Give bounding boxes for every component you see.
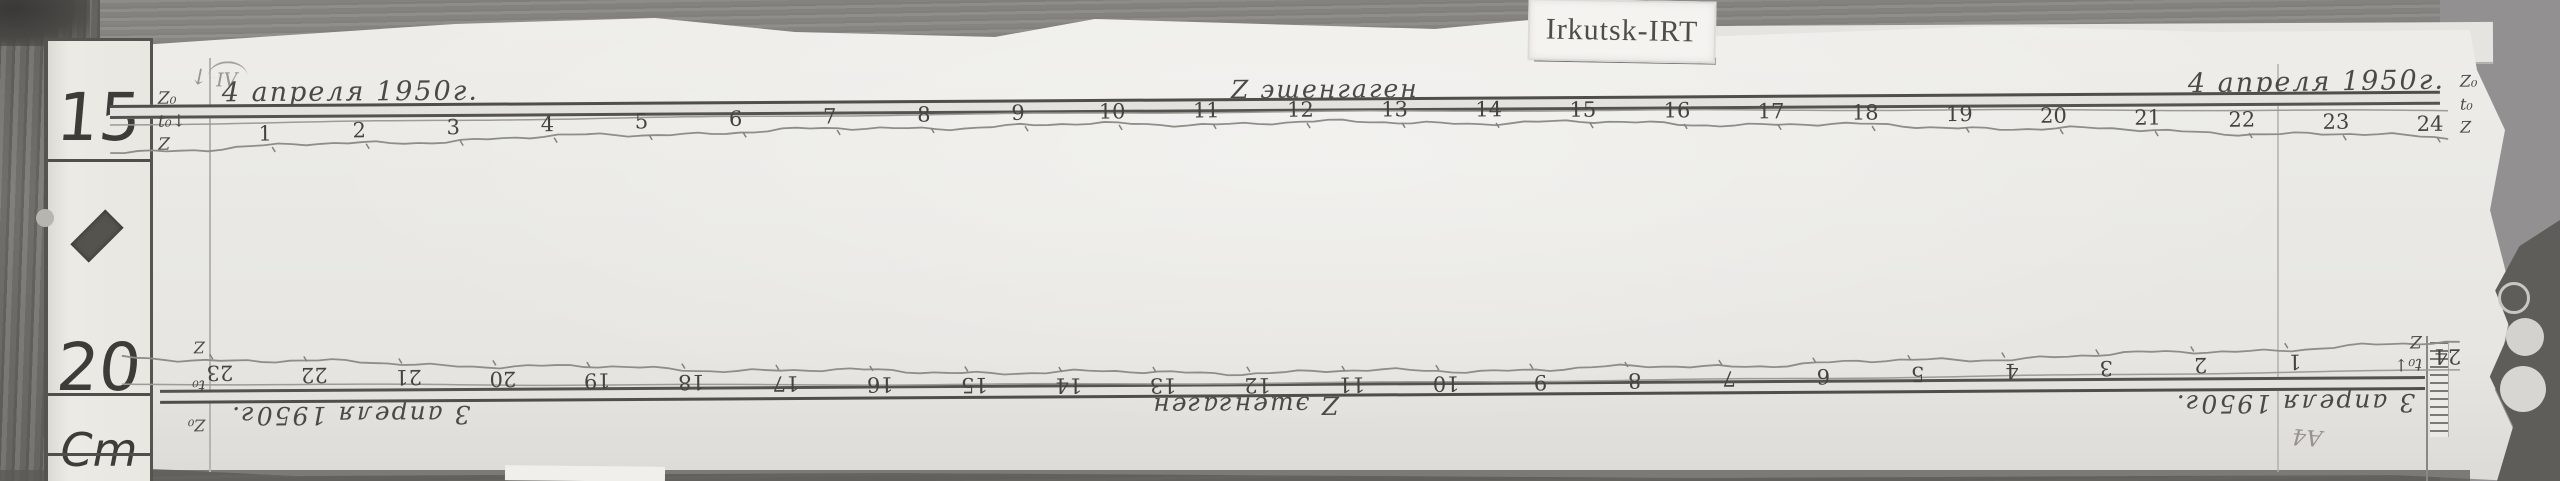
svg-text:17: 17 [772, 371, 799, 395]
svg-text:21: 21 [395, 365, 422, 389]
svg-text:14: 14 [1055, 373, 1082, 397]
svg-text:22: 22 [2228, 108, 2255, 132]
date-right: 3 апреля 1950г. [230, 400, 470, 430]
svg-text:22: 22 [301, 363, 328, 387]
svg-text:11: 11 [1193, 98, 1220, 122]
svg-text:20: 20 [2040, 104, 2067, 128]
svg-text:10: 10 [1099, 99, 1126, 123]
paper-hole [2506, 318, 2544, 356]
paper-sliver [505, 465, 665, 481]
svg-text:8: 8 [1628, 368, 1642, 392]
svg-text:7: 7 [823, 104, 837, 128]
svg-text:3: 3 [447, 115, 461, 139]
top-recording-strip: ↓ IV 4 апреля 1950г. Z эшенгаген 4 апрел… [110, 48, 2461, 172]
margin-label: t₀↓ [158, 111, 186, 134]
ruler-notch [36, 209, 54, 227]
z-trace-and-hour-scale: 123456789101112131415161718192021222324 [110, 308, 2460, 397]
pencil-archive-note: А4 [2291, 423, 2323, 450]
svg-text:2: 2 [352, 118, 366, 142]
svg-text:1: 1 [2288, 350, 2302, 374]
svg-text:7: 7 [1722, 366, 1736, 390]
station-label: Irkutsk-IRT [1545, 13, 1698, 50]
svg-text:8: 8 [917, 102, 931, 126]
svg-text:20: 20 [489, 367, 516, 391]
svg-text:21: 21 [2134, 106, 2161, 130]
paper-hole [2500, 366, 2546, 412]
svg-text:6: 6 [729, 107, 743, 131]
svg-text:24: 24 [2434, 344, 2461, 368]
paper-bottom-shadow [0, 470, 2470, 481]
margin-label: t₀↓ [2394, 352, 2422, 375]
svg-text:1: 1 [258, 122, 272, 146]
svg-text:19: 19 [1946, 102, 1973, 126]
svg-text:18: 18 [678, 370, 705, 394]
svg-text:13: 13 [1381, 97, 1408, 121]
margin-label: Z [158, 134, 186, 157]
margin-label: Z [2394, 329, 2422, 352]
svg-text:18: 18 [1852, 100, 1879, 124]
svg-text:12: 12 [1287, 98, 1314, 122]
margin-label: Z [187, 328, 205, 367]
svg-text:5: 5 [635, 109, 649, 133]
date-left: 3 апреля 1950г. [2175, 388, 2415, 418]
left-margin-labels: t₀↓Z [2394, 329, 2422, 375]
right-margin-labels: Z₀t₀Z [2460, 70, 2478, 139]
svg-text:4: 4 [2005, 359, 2019, 383]
margin-label: Z₀ [188, 406, 206, 445]
margin-label: Z [2460, 116, 2478, 139]
svg-text:16: 16 [1664, 98, 1691, 122]
svg-text:15: 15 [961, 373, 988, 397]
svg-text:3: 3 [2100, 356, 2114, 380]
svg-text:2: 2 [2194, 353, 2208, 377]
svg-text:13: 13 [1150, 373, 1177, 397]
svg-text:12: 12 [1244, 373, 1271, 397]
svg-text:6: 6 [1817, 364, 1831, 388]
margin-label: t₀ [187, 367, 205, 406]
svg-text:16: 16 [867, 372, 894, 396]
svg-text:11: 11 [1338, 372, 1365, 396]
ruler-divider [48, 453, 150, 456]
left-margin-labels: Z₀t₀↓Z [158, 88, 186, 157]
svg-text:14: 14 [1475, 97, 1502, 121]
margin-label: t₀ [2460, 93, 2478, 116]
svg-text:24: 24 [2417, 112, 2444, 136]
magnetogram-photo: Irkutsk-IRT 15 20 Cm ↓ IV 4 апреля 1950г… [0, 0, 2560, 481]
right-margin-labels: Z₀t₀Z [187, 328, 205, 445]
paper-hole-ring [2498, 282, 2530, 314]
bottom-recording-strip: 3 апреля 1950г. Z эшенгаген 3 апреля 195… [110, 323, 2461, 447]
svg-text:19: 19 [584, 368, 611, 392]
svg-text:17: 17 [1758, 99, 1785, 123]
pencil-arrow-icon: ↓ [187, 64, 210, 93]
svg-text:23: 23 [206, 361, 233, 385]
margin-label: Z₀ [2460, 70, 2478, 93]
margin-label: Z₀ [158, 88, 186, 111]
svg-text:10: 10 [1433, 371, 1460, 395]
svg-text:9: 9 [1534, 370, 1548, 394]
svg-text:15: 15 [1569, 98, 1596, 122]
svg-text:9: 9 [1011, 101, 1025, 125]
z-trace-and-hour-scale: 123456789101112131415161718192021222324 [110, 98, 2460, 187]
svg-text:23: 23 [2323, 110, 2350, 134]
ruler-diamond-mark [70, 209, 123, 262]
svg-text:4: 4 [541, 112, 555, 136]
svg-text:5: 5 [1911, 362, 1925, 386]
